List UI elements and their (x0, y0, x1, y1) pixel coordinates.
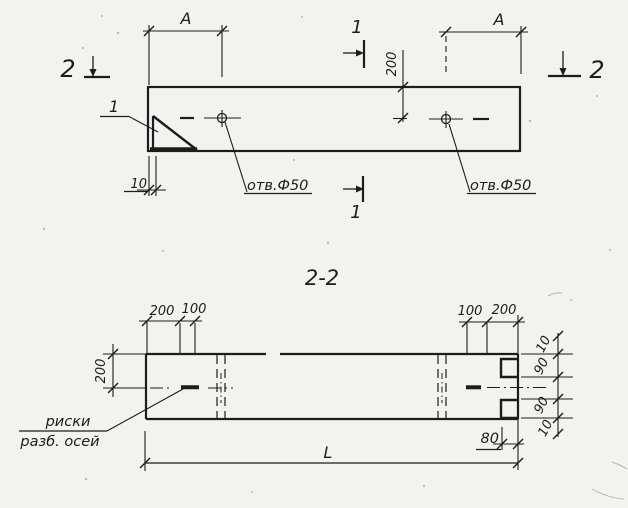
arrow-down-icon (90, 69, 97, 77)
hole-right-callout: отв.Ф50 (449, 124, 536, 194)
section-mark-1-bottom-label: 1 (350, 202, 361, 223)
scanned-drawing-page: отв.Ф50 отв.Ф50 1 A (0, 0, 628, 508)
dim-stack-10-top: 10 (533, 334, 554, 356)
plan-view: отв.Ф50 отв.Ф50 1 A (60, 9, 604, 223)
beam-outline-plan (148, 87, 520, 151)
section-mark-1-top-label: 1 (351, 17, 362, 38)
arrow-right-icon (356, 50, 364, 57)
corner-triangle-mark (150, 116, 197, 150)
dim-stack-10-bottom: 10 (535, 418, 556, 440)
hidden-hole-left (217, 355, 225, 418)
axis-note-line1: риски (45, 414, 91, 430)
notch-top (501, 359, 518, 377)
centre-line (150, 387, 546, 388)
section-mark-2-right-label: 2 (589, 56, 604, 84)
dim-a-left: A (143, 9, 229, 85)
section-mark-1-top: 1 (343, 17, 364, 68)
dim-a-left-label: A (180, 9, 192, 28)
hidden-hole-right (438, 355, 446, 418)
dim-80-label: 80 (481, 431, 499, 447)
beam-outline-section (146, 354, 518, 419)
hole-right (429, 111, 489, 128)
section-mark-2-right: 2 (548, 51, 605, 84)
dim-chain-tl-200: 200 (150, 304, 175, 319)
hole-left-callout: отв.Ф50 (225, 122, 312, 194)
dim-length-L: L (140, 431, 523, 471)
dim-a-right: A (439, 10, 528, 74)
arrow-down-icon (560, 68, 567, 76)
dim-chain-tl-100: 100 (182, 302, 207, 317)
dim-200-section: 200 (94, 344, 146, 397)
hole-left (180, 110, 241, 127)
notch-bottom (501, 400, 518, 418)
dim-length-label: L (324, 443, 333, 462)
dim-stack-right: 10 90 90 10 (521, 331, 573, 439)
section-title: 2-2 (305, 266, 339, 290)
detail-callout-1: 1 (100, 97, 158, 132)
detail-callout-label: 1 (109, 97, 119, 116)
dim-chain-tr-100: 100 (458, 304, 483, 319)
dim-200-plan-label: 200 (385, 52, 400, 77)
dim-stack-90-top: 90 (531, 356, 552, 378)
dim-chain-top-right: 100 200 (458, 303, 525, 354)
dim-10-label: 10 (130, 177, 147, 192)
hole-left-label: отв.Ф50 (247, 178, 308, 194)
dim-chain-top-left: 200 100 (139, 302, 206, 354)
section-mark-1-bottom: 1 (343, 176, 364, 223)
dim-a-right-label: A (493, 10, 505, 29)
hole-right-label: отв.Ф50 (470, 178, 531, 194)
dim-10-plan: 10 (124, 156, 166, 196)
dim-200-section-label: 200 (94, 359, 109, 384)
section-mark-2-left-label: 2 (60, 55, 75, 83)
axis-note-line2: разб. осей (19, 434, 99, 450)
section-mark-2-left: 2 (60, 55, 110, 83)
drawing-canvas: отв.Ф50 отв.Ф50 1 A (0, 0, 628, 508)
dim-stack-90-bottom: 90 (531, 395, 552, 417)
dim-chain-tr-200: 200 (492, 303, 517, 318)
section-view-2-2: 2-2 (19, 266, 573, 471)
